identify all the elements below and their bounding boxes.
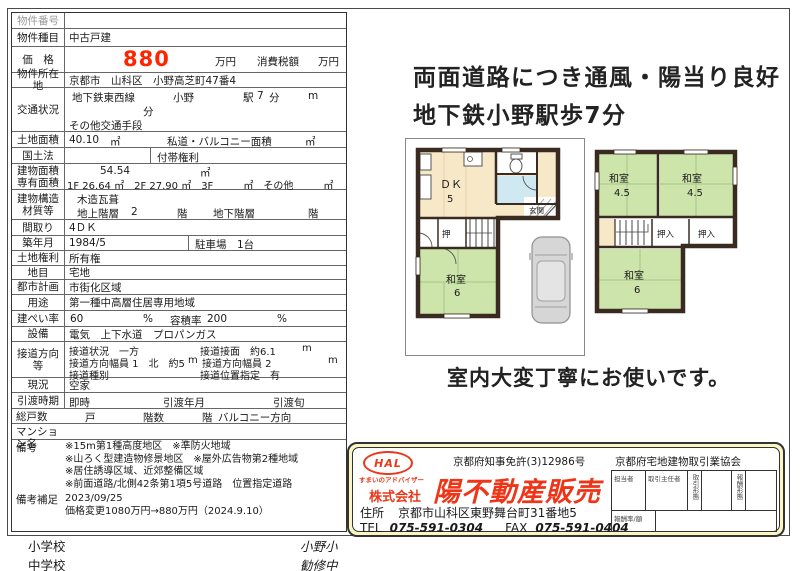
price-unit: 万円 (215, 54, 236, 69)
attached-rights-label: 付帯権利 (157, 150, 199, 165)
room-label-washitsu-1: 和室 (609, 172, 629, 185)
property-table: 物件番号 物件種目 中古戸建 価 格 880 万円 消費税額 万円 物件所在地 … (11, 12, 347, 532)
hal-logo: HAL (363, 451, 413, 475)
agent-col-shunin: 取引主任者 (646, 471, 688, 510)
coverage-ratio: 60 (70, 313, 83, 325)
closet-label-2: 押入 (698, 229, 716, 240)
table-row: 現況 空家 (12, 378, 346, 393)
parking-label: 駐車場 (195, 237, 227, 252)
handover-timing: 即時 (69, 395, 90, 410)
walk-minutes: 7 (257, 90, 264, 102)
floor-unit: 階 (308, 206, 319, 221)
row-label: 備考補足 (12, 492, 65, 531)
agent-row-blank (656, 511, 776, 531)
elementary-school-value: 小野小 (300, 536, 338, 555)
table-row: 国土法 付帯権利 (12, 148, 346, 164)
handover-date-label: 引渡年月 (163, 395, 205, 410)
row-label: 備考 (12, 440, 65, 492)
price-value: 880 (123, 47, 170, 71)
property-flyer-page: 物件番号 物件種目 中古戸建 価 格 880 万円 消費税額 万円 物件所在地 … (0, 0, 800, 571)
percent-unit: % (277, 313, 287, 325)
meters-unit: m (308, 90, 318, 102)
land-rights: 所有権 (69, 251, 101, 266)
exclusive-area-label: 専有面積 (17, 177, 59, 189)
row-value (65, 424, 346, 439)
table-row: 交通状況 地下鉄東西線 小野 駅 7 分 m 分 その他交通手段 (12, 88, 346, 132)
unit-count-unit: 戸 (85, 410, 96, 425)
table-row: 物件所在地 京都市 山科区 小野高芝町47番4 (12, 73, 346, 88)
agent-col-tanto: 担当者 (612, 471, 646, 510)
table-row: 引渡時期 即時 引渡年月 引渡旬 (12, 393, 346, 409)
closet-label: 押 (442, 229, 451, 240)
station-name: 小野 (173, 90, 194, 105)
property-type: 中古戸建 (69, 30, 111, 45)
table-row: 築年月 1984/5 駐車場 1台 (12, 236, 346, 251)
table-row: 物件番号 (12, 13, 346, 29)
cell-divider (150, 148, 151, 163)
private-road-label: 私道・バルコニー面積 (167, 134, 272, 149)
tax-label: 消費税額 (257, 54, 299, 69)
structure-label: 建物構造 (17, 193, 59, 205)
structure-value: 木造瓦葺 (77, 192, 119, 207)
junior-high-label: 中学校 (28, 555, 66, 571)
land-area: 40.10 (69, 134, 99, 146)
table-row: 間取り 4ＤＫ (12, 220, 346, 236)
table-row: 接道方向等 接道状況 一方 接道接面 約6.1 m 接道方向幅員 1 北 約5 … (12, 342, 346, 378)
meters-unit: m (328, 355, 338, 366)
room-size-washitsu-2: 4.5 (687, 188, 703, 199)
remarks-supplement-line: 価格変更1080万円→880万円（2024.9.10） (65, 506, 346, 519)
property-address: 京都市 山科区 小野高芝町47番4 (69, 73, 236, 88)
remarks-line: ※前面道路/北側42条第1項5号道路 位置指定道路 (65, 479, 346, 492)
car-icon (529, 237, 573, 323)
tel-label: TEL (360, 521, 382, 535)
agent-col-keitai: 取引形態 (688, 471, 702, 510)
row-label: 用途 (12, 295, 65, 310)
agent-col-blank (746, 471, 776, 510)
row-label: 総戸数 (12, 409, 65, 423)
cell-divider (188, 236, 189, 250)
closet-label-1: 押入 (657, 229, 675, 240)
other-transport-label: その他交通手段 (69, 118, 143, 133)
sqm-unit: ㎡ (305, 134, 316, 149)
floorplan-2f: 和室 4.5 和室 4.5 押入 押入 和室 6 (592, 142, 780, 334)
room-label-washitsu: 和室 (446, 273, 466, 286)
remarks-line: ※山ろく型建造物修景地区 ※屋外広告物第2種地域 (65, 454, 346, 467)
company-box: HAL すまいのアドバイザー 京都府知事免許(3)12986号 京都府宅地建物取… (347, 442, 785, 537)
remarks-line: ※居住誘導区域、近郊整備区域 (65, 466, 346, 479)
room-label-washitsu-2: 和室 (682, 172, 702, 185)
table-row: 設備 電気 上下水道 プロパンガス (12, 327, 346, 342)
floors-label: 階数 (143, 410, 164, 425)
agent-col-blank (702, 471, 732, 510)
floor-unit: 階 (202, 410, 213, 425)
remarks-supplement-line: 2023/09/25 (65, 493, 346, 506)
agent-col-hoshu: 報酬形態 (732, 471, 746, 510)
junior-high-value: 勧修中 (300, 555, 338, 571)
row-label: 地目 (12, 266, 65, 279)
table-row: 建物面積 専有面積 54.54 ㎡ 1F 26.64 ㎡ 2F 27.90 ㎡ … (12, 164, 346, 190)
minutes-unit-2: 分 (143, 104, 154, 119)
land-category: 宅地 (69, 265, 90, 280)
table-row: 建物構造 材質等 木造瓦葺 地上階層 2 階 地下階層 階 (12, 190, 346, 220)
row-label: 築年月 (12, 236, 65, 250)
current-status: 空家 (69, 378, 90, 393)
row-label: 現況 (12, 378, 65, 392)
row-label: 建ぺい率 (12, 311, 65, 326)
material-label: 材質等 (22, 205, 54, 217)
room-label-dk: ＤＫ (440, 178, 462, 191)
room-size-washitsu: 6 (454, 288, 460, 299)
row-label: 土地権利 (12, 251, 65, 265)
row-label: 交通状況 (12, 88, 65, 131)
room-size-dk: 5 (447, 194, 453, 205)
headline-roads: 両面道路につき通風・陽当り良好 (413, 58, 781, 92)
table-row: 用途 第一種中高層住居専用地域 (12, 295, 346, 311)
agent-row-ritsu: 報酬率/額 (612, 511, 656, 531)
row-value (65, 13, 346, 28)
basement-label: 地下階層 (213, 206, 255, 221)
company-prefix: 株式会社 (369, 486, 421, 505)
parking-value: 1台 (237, 237, 254, 252)
row-label: 物件所在地 (12, 73, 65, 87)
built-date: 1984/5 (69, 237, 106, 249)
interior-caption: 室内大変丁寧にお使いです。 (447, 362, 730, 392)
table-row: 総戸数 戸 階数 階 バルコニー方向 (12, 409, 346, 424)
elementary-school-label: 小学校 (28, 536, 66, 555)
table-row: 地目 宅地 (12, 266, 346, 280)
meters-unit: m (302, 343, 312, 354)
above-ground-label: 地上階層 (77, 206, 119, 221)
room-label-genkan: 玄関 (529, 205, 544, 215)
table-row: 備考補足 2023/09/25 価格変更1080万円→880万円（2024.9.… (12, 492, 346, 531)
table-row: 土地権利 所有権 (12, 251, 346, 266)
row-label: 物件番号 (12, 13, 65, 28)
table-row: 建ぺい率 60 % 容積率 200 % (12, 311, 346, 327)
table-row: 土地面積 40.10 ㎡ 私道・バルコニー面積 ㎡ (12, 132, 346, 148)
row-label: 設備 (12, 327, 65, 341)
table-row: 備考 ※15m第1種高度地区 ※準防火地域 ※山ろく型建造物修景地区 ※屋外広告… (12, 440, 346, 492)
tel-number: 075-591-0304 (390, 521, 483, 535)
room-size-washitsu-3: 6 (634, 285, 640, 296)
row-label: マンション名 (12, 424, 65, 439)
tax-unit: 万円 (318, 54, 339, 69)
percent-unit: % (143, 313, 153, 325)
floor-unit: 階 (177, 206, 188, 221)
station-suffix: 駅 (243, 90, 254, 105)
hal-logo-subtext: すまいのアドバイザー (359, 474, 424, 484)
minutes-unit: 分 (269, 90, 280, 105)
address-label: 住所 (360, 506, 384, 520)
remarks-line: ※15m第1種高度地区 ※準防火地域 (65, 441, 346, 454)
meters-unit: m (188, 355, 198, 366)
table-row: 都市計画 市街化区域 (12, 280, 346, 295)
association-name: 京都府宅地建物取引業協会 (615, 454, 741, 469)
license-number: 京都府知事免許(3)12986号 (453, 454, 585, 469)
row-label: 国土法 (12, 148, 65, 163)
zoning: 第一種中高層住居専用地域 (69, 295, 195, 310)
balcony-direction-label: バルコニー方向 (218, 410, 291, 425)
above-ground-floors: 2 (131, 206, 138, 218)
fax-label: FAX (505, 521, 527, 535)
row-label: 間取り (12, 220, 65, 235)
row-label: 引渡時期 (12, 393, 65, 408)
row-label: 物件種目 (12, 29, 65, 46)
agent-info-table: 担当者 取引主任者 取引形態 報酬形態 報酬率/額 (611, 470, 777, 532)
room-size-washitsu-1: 4.5 (614, 188, 630, 199)
row-label: 土地面積 (12, 132, 65, 147)
row-label: 都市計画 (12, 280, 65, 294)
floorplan-1f: ＤＫ 5 玄関 押 和室 6 (404, 137, 586, 357)
row-label: 接道方向等 (12, 342, 65, 377)
floor-area-ratio: 200 (207, 313, 227, 325)
building-area: 54.54 (100, 165, 130, 177)
room-label-washitsu-3: 和室 (624, 269, 644, 282)
utilities: 電気 上下水道 プロパンガス (69, 327, 217, 342)
building-area-label: 建物面積 (17, 165, 59, 177)
table-row: マンション名 (12, 424, 346, 440)
table-row: 物件種目 中古戸建 (12, 29, 346, 47)
rail-line: 地下鉄東西線 (72, 90, 135, 105)
layout-value: 4ＤＫ (69, 220, 97, 235)
sqm-unit: ㎡ (110, 134, 121, 149)
company-address: 京都市山科区東野舞台町31番地5 (398, 506, 577, 520)
city-planning: 市街化区域 (69, 280, 122, 295)
headline-station: 地下鉄小野駅歩7分 (413, 96, 627, 130)
handover-period-label: 引渡旬 (273, 395, 305, 410)
